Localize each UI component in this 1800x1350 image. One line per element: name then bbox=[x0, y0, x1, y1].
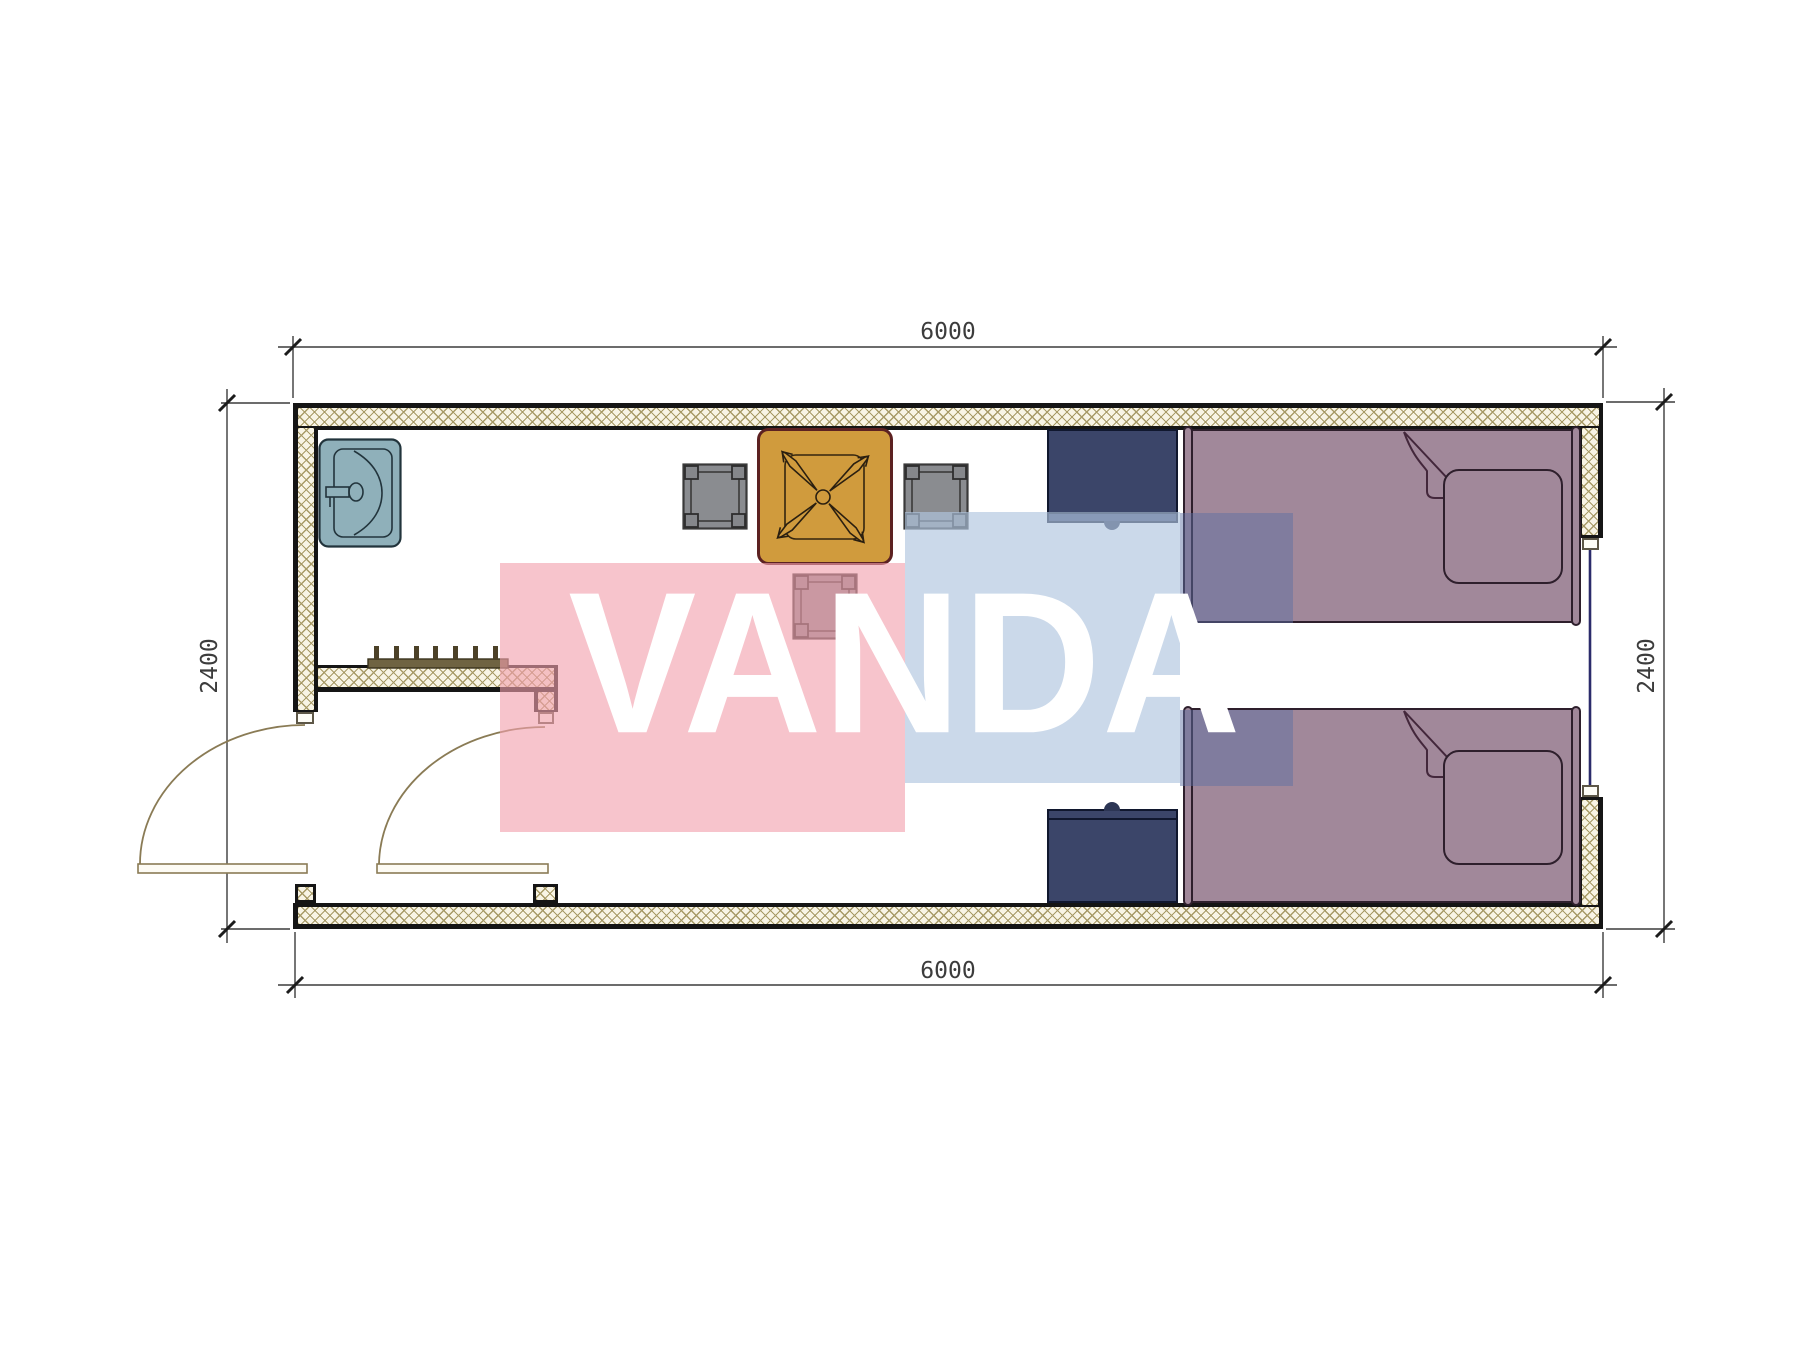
coat-rack-icon bbox=[362, 644, 512, 670]
table-icon bbox=[757, 428, 893, 565]
dining-table bbox=[757, 428, 893, 565]
nightstand-top bbox=[1047, 429, 1178, 523]
door-jamb-left-wall bbox=[296, 712, 314, 724]
nightstand-bottom bbox=[1047, 809, 1178, 903]
wall-left bbox=[293, 428, 318, 712]
wash-basin bbox=[318, 438, 402, 548]
floor-plan-canvas: 6000 6000 2400 2400 bbox=[0, 0, 1800, 1350]
wall-bottom bbox=[293, 903, 1603, 929]
wash-basin-icon bbox=[318, 438, 402, 548]
window-jamb-top bbox=[1582, 538, 1599, 550]
door-post-bottom-left bbox=[295, 884, 316, 903]
window-jamb-bottom bbox=[1582, 785, 1599, 797]
door-leaves bbox=[138, 864, 548, 873]
wall-right-lower bbox=[1578, 797, 1603, 905]
door-swing-arcs bbox=[140, 725, 545, 864]
dim-right-2400: 2400 bbox=[1634, 638, 1660, 693]
door-post-bottom-mid bbox=[533, 884, 558, 903]
dim-bottom-6000: 6000 bbox=[920, 958, 975, 984]
wall-right-upper bbox=[1578, 428, 1603, 538]
stool-left bbox=[682, 463, 748, 534]
nightstand-knob bbox=[1104, 802, 1120, 811]
dim-top-6000: 6000 bbox=[920, 319, 975, 345]
pillow-top-bed bbox=[1443, 469, 1563, 584]
pillow-bottom-bed bbox=[1443, 750, 1563, 865]
wall-top bbox=[293, 403, 1603, 430]
watermark-text: VANDA bbox=[552, 555, 1258, 771]
dim-left-2400: 2400 bbox=[197, 638, 223, 693]
